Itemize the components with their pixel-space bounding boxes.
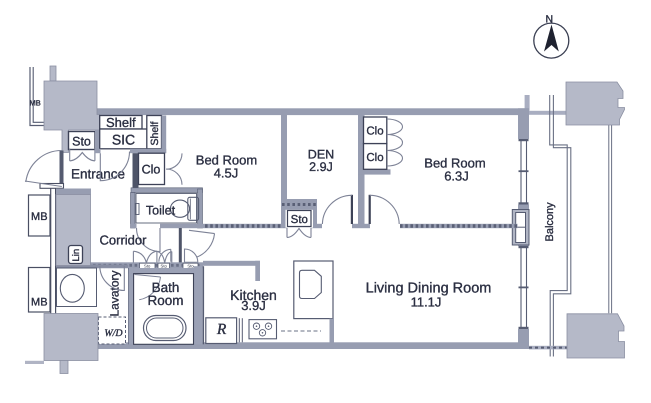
svg-text:6.3J: 6.3J: [444, 169, 469, 184]
svg-text:4.5J: 4.5J: [214, 166, 239, 181]
svg-text:11.1J: 11.1J: [411, 295, 442, 310]
svg-text:Clo: Clo: [366, 152, 383, 164]
svg-text:Room: Room: [147, 293, 183, 308]
svg-text:Clo: Clo: [142, 163, 161, 177]
svg-text:Sto: Sto: [187, 264, 194, 269]
svg-text:Toilet: Toilet: [146, 204, 176, 218]
svg-text:Lavatory: Lavatory: [108, 270, 122, 316]
svg-text:SIC: SIC: [112, 131, 135, 147]
svg-text:Lin: Lin: [71, 249, 82, 262]
svg-text:2.9J: 2.9J: [309, 160, 333, 174]
svg-text:Entrance: Entrance: [71, 167, 125, 182]
svg-text:Corridor: Corridor: [100, 233, 148, 248]
svg-text:N: N: [546, 14, 554, 26]
svg-text:Sto: Sto: [291, 214, 308, 226]
svg-text:MB: MB: [30, 99, 41, 108]
svg-text:3.9J: 3.9J: [241, 298, 266, 313]
svg-text:MB: MB: [31, 211, 48, 223]
svg-text:Shelf: Shelf: [106, 115, 136, 130]
svg-text:Sto: Sto: [72, 134, 91, 148]
svg-text:W/D: W/D: [104, 328, 123, 339]
svg-text:MB: MB: [31, 296, 48, 308]
svg-text:R: R: [216, 321, 227, 338]
svg-text:Clo: Clo: [366, 125, 383, 137]
svg-text:Sto: Sto: [161, 264, 168, 269]
svg-text:Sto: Sto: [144, 264, 151, 269]
svg-text:Balcony: Balcony: [544, 202, 556, 242]
svg-text:Shelf: Shelf: [149, 121, 161, 145]
